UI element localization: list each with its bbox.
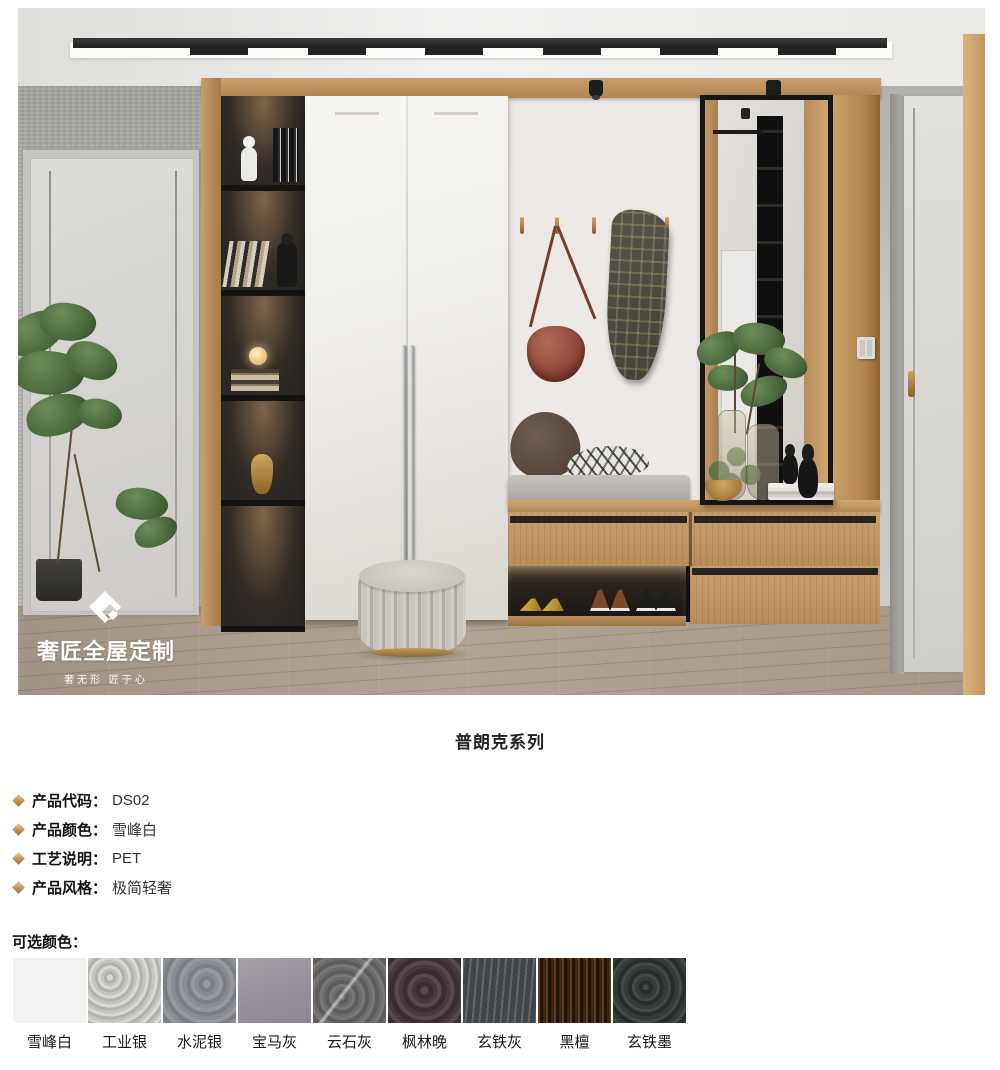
shelf-compartment <box>221 506 305 632</box>
reflection-track-light <box>713 130 763 134</box>
spec-label: 产品风格： <box>32 877 107 898</box>
bag-body <box>527 326 585 382</box>
astronaut-figurine <box>241 147 257 181</box>
reflection-spotlight <box>741 108 750 119</box>
glowing-lamp <box>249 347 267 365</box>
right-door-handle <box>908 371 915 397</box>
color-swatch: 玄铁墨 <box>613 958 686 1052</box>
wardrobe-top-recess <box>335 112 379 115</box>
stacked-books <box>231 369 279 391</box>
ottoman-brass-base <box>370 648 454 657</box>
color-swatch-row: 雪峰白 工业银 水泥银 宝马灰 云石灰 枫林晚 玄铁灰 黑檀 玄铁墨 <box>13 958 686 1052</box>
track-light-bar <box>73 38 887 48</box>
drawer-seam <box>689 512 692 566</box>
wardrobe-handle <box>402 345 406 560</box>
ceiling-spotlight <box>589 80 603 97</box>
track-light-module <box>543 48 601 55</box>
spec-row-style: 产品风格： 极简轻奢 <box>12 877 172 897</box>
brand-name: 奢匠全屋定制 <box>32 634 180 666</box>
track-light-module <box>778 48 836 55</box>
drawer-handle-recess <box>510 516 687 523</box>
series-title: 普朗克系列 <box>0 728 1000 753</box>
drawer-handle-recess <box>694 516 876 523</box>
spec-label: 工艺说明： <box>32 848 107 869</box>
spec-list: 产品代码： DS02 产品颜色： 雪峰白 工艺说明： PET 产品风格： 极简轻… <box>12 790 172 906</box>
color-swatch: 黑檀 <box>538 958 611 1052</box>
shoe-niche-base <box>508 616 686 626</box>
black-shoe <box>656 589 676 611</box>
swatch-label: 工业银 <box>102 1031 147 1052</box>
bag-strap <box>556 225 596 319</box>
spec-row-product-color: 产品颜色： 雪峰白 <box>12 819 172 839</box>
black-shoe <box>636 589 656 611</box>
plant-stem <box>57 423 74 562</box>
brand-tagline: 奢无形 匠于心 <box>32 671 180 686</box>
shoe-niche <box>508 566 686 616</box>
swatch-chip <box>613 958 686 1023</box>
bag-strap <box>529 226 557 328</box>
books <box>273 128 299 182</box>
brand-diamond-icon <box>88 590 124 626</box>
swatch-label: 云石灰 <box>327 1031 372 1052</box>
track-light-module <box>308 48 366 55</box>
shelf-compartment <box>221 96 305 191</box>
swatch-chip <box>13 958 86 1023</box>
wardrobe-door-seam <box>406 96 408 620</box>
gold-shoe <box>542 598 564 611</box>
open-shelf-unit <box>221 96 305 626</box>
round-ottoman <box>358 560 466 662</box>
indoor-plant <box>18 303 156 613</box>
black-astronaut-figurine <box>798 458 818 498</box>
swatch-chip <box>313 958 386 1023</box>
diamond-bullet-icon <box>12 852 25 865</box>
swatch-label: 枫林晚 <box>402 1031 447 1052</box>
color-swatch: 枫林晚 <box>388 958 461 1052</box>
track-light-module <box>660 48 718 55</box>
white-wardrobe <box>305 96 508 620</box>
brown-shoe <box>610 589 630 611</box>
track-light-module <box>190 48 248 55</box>
hanging-bag <box>523 226 598 396</box>
swatch-chip <box>88 958 161 1023</box>
spec-value: PET <box>112 850 141 867</box>
brass-vase <box>251 454 273 494</box>
drawer-front-upper <box>508 512 880 566</box>
spec-value: DS02 <box>112 792 150 809</box>
wardrobe-handle <box>410 345 414 560</box>
plant-stem <box>74 454 101 572</box>
swatch-label: 玄铁墨 <box>627 1031 672 1052</box>
color-swatch: 工业银 <box>88 958 161 1052</box>
spec-value: 极简轻奢 <box>112 877 172 898</box>
swatch-label: 雪峰白 <box>27 1031 72 1052</box>
drawer-front-lower <box>690 566 880 624</box>
ottoman-cushion-top <box>359 560 465 592</box>
color-swatch: 雪峰白 <box>13 958 86 1052</box>
wardrobe-top-recess <box>434 112 478 115</box>
spec-label: 产品颜色： <box>32 819 107 840</box>
swatch-chip <box>538 958 611 1023</box>
cabinet-wood-side <box>201 78 221 626</box>
swatch-label: 黑檀 <box>559 1031 589 1052</box>
black-figurine <box>277 241 297 287</box>
color-swatch: 宝马灰 <box>238 958 311 1052</box>
shelf-compartment <box>221 401 305 506</box>
brown-shoe <box>590 589 610 611</box>
leaning-books <box>222 241 269 287</box>
gold-shoe <box>520 598 542 611</box>
shelf-compartment <box>221 296 305 401</box>
bench-cushion <box>508 475 690 501</box>
optional-colors-heading: 可选颜色： <box>12 931 87 952</box>
swatch-chip <box>163 958 236 1023</box>
right-door-jamb <box>890 94 904 674</box>
mirror-side-wood-panel <box>833 95 880 500</box>
spec-value: 雪峰白 <box>112 819 157 840</box>
spec-row-product-code: 产品代码： DS02 <box>12 790 172 810</box>
black-astronaut-figurine <box>782 454 798 484</box>
swatch-chip <box>238 958 311 1023</box>
brand-watermark: 奢匠全屋定制 奢无形 匠于心 <box>32 590 180 686</box>
right-wood-wall-panel <box>963 34 985 695</box>
diamond-bullet-icon <box>12 823 25 836</box>
color-swatch: 云石灰 <box>313 958 386 1052</box>
color-swatch: 玄铁灰 <box>463 958 536 1052</box>
shelf-compartment <box>221 191 305 296</box>
light-switch <box>857 337 875 359</box>
spec-label: 产品代码： <box>32 790 107 811</box>
right-door <box>904 96 964 672</box>
color-swatch: 水泥银 <box>163 958 236 1052</box>
swatch-label: 玄铁灰 <box>477 1031 522 1052</box>
drawer-handle-recess <box>692 568 878 575</box>
spec-row-process: 工艺说明： PET <box>12 848 172 868</box>
swatch-label: 宝马灰 <box>252 1031 297 1052</box>
diamond-bullet-icon <box>12 794 25 807</box>
product-photo: 奢匠全屋定制 奢无形 匠于心 <box>18 8 985 695</box>
swatch-chip <box>388 958 461 1023</box>
track-light-module <box>425 48 483 55</box>
swatch-label: 水泥银 <box>177 1031 222 1052</box>
diamond-bullet-icon <box>12 881 25 894</box>
swatch-chip <box>463 958 536 1023</box>
